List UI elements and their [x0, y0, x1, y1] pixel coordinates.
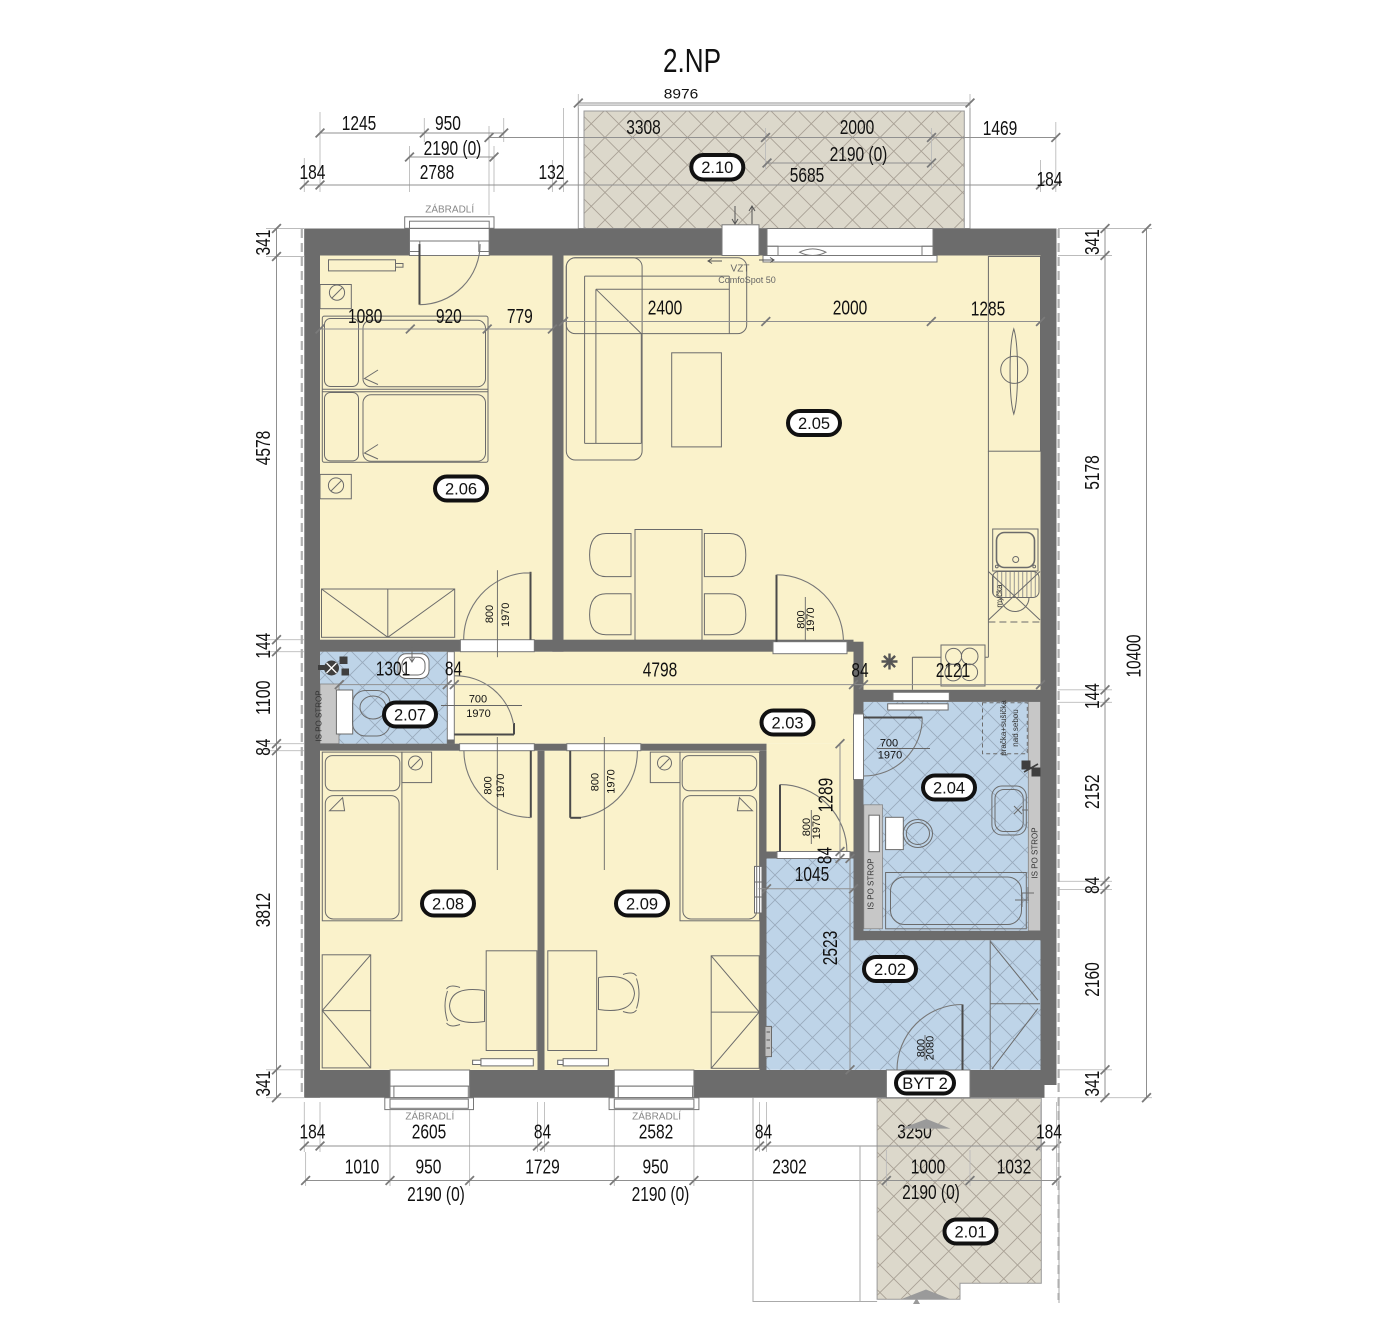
svg-text:1970: 1970: [878, 749, 902, 761]
svg-text:920: 920: [436, 306, 462, 328]
svg-text:1245: 1245: [342, 113, 377, 135]
svg-text:2190 (0): 2190 (0): [632, 1184, 690, 1206]
svg-text:10400: 10400: [1124, 634, 1146, 677]
svg-text:2.03: 2.03: [771, 714, 803, 732]
svg-text:800: 800: [484, 605, 496, 623]
svg-text:1970: 1970: [811, 815, 823, 839]
svg-text:4798: 4798: [643, 660, 678, 682]
svg-text:2.NP: 2.NP: [663, 42, 721, 79]
svg-text:2605: 2605: [412, 1122, 447, 1144]
svg-text:341: 341: [253, 230, 275, 256]
svg-text:1970: 1970: [500, 603, 512, 627]
svg-text:IS PO STROP: IS PO STROP: [314, 690, 323, 741]
svg-text:3308: 3308: [626, 117, 661, 139]
svg-text:1045: 1045: [795, 864, 830, 886]
svg-text:84: 84: [815, 847, 837, 864]
svg-text:1970: 1970: [495, 774, 507, 798]
svg-text:2788: 2788: [420, 162, 455, 184]
svg-text:nad sebou: nad sebou: [1011, 709, 1020, 746]
svg-text:2160: 2160: [1082, 962, 1104, 997]
svg-text:2080: 2080: [925, 1036, 937, 1060]
svg-text:132: 132: [539, 162, 565, 184]
svg-text:2.08: 2.08: [432, 895, 464, 913]
svg-text:BYT 2: BYT 2: [902, 1075, 948, 1093]
svg-text:1729: 1729: [525, 1157, 560, 1179]
svg-text:5178: 5178: [1082, 455, 1104, 490]
svg-text:2190 (0): 2190 (0): [830, 144, 888, 166]
svg-text:IS PO STROP: IS PO STROP: [866, 858, 875, 909]
svg-text:779: 779: [507, 306, 533, 328]
svg-text:2121: 2121: [936, 660, 971, 682]
svg-text:1000: 1000: [911, 1157, 946, 1179]
svg-text:2.04: 2.04: [933, 779, 965, 797]
svg-text:184: 184: [1037, 169, 1063, 191]
svg-text:2400: 2400: [648, 298, 683, 320]
svg-text:144: 144: [253, 633, 275, 659]
svg-text:1970: 1970: [606, 769, 618, 793]
svg-text:2582: 2582: [639, 1122, 674, 1144]
svg-text:1301: 1301: [376, 659, 411, 681]
svg-text:184: 184: [1036, 1122, 1062, 1144]
svg-text:950: 950: [435, 113, 461, 135]
svg-text:1032: 1032: [997, 1157, 1032, 1179]
svg-text:2.05: 2.05: [798, 415, 830, 433]
svg-text:2.02: 2.02: [874, 961, 906, 979]
svg-text:2.09: 2.09: [626, 895, 658, 913]
svg-text:4578: 4578: [253, 431, 275, 466]
svg-text:VZT: VZT: [731, 264, 750, 275]
svg-text:IS PO STROP: IS PO STROP: [1030, 827, 1039, 878]
svg-text:2.06: 2.06: [445, 480, 477, 498]
svg-text:1285: 1285: [971, 299, 1006, 321]
svg-text:84: 84: [1082, 877, 1104, 894]
svg-text:341: 341: [1082, 229, 1104, 255]
svg-text:3812: 3812: [253, 893, 275, 928]
svg-text:2523: 2523: [820, 931, 842, 966]
svg-text:800: 800: [590, 773, 602, 791]
svg-text:8976: 8976: [664, 85, 699, 101]
svg-text:2190 (0): 2190 (0): [424, 138, 482, 160]
svg-text:1970: 1970: [466, 708, 490, 720]
svg-text:2.07: 2.07: [394, 706, 426, 724]
svg-text:2302: 2302: [772, 1157, 807, 1179]
svg-text:341: 341: [253, 1071, 275, 1097]
svg-text:2.01: 2.01: [954, 1223, 986, 1241]
svg-text:700: 700: [880, 737, 898, 749]
svg-text:84: 84: [445, 659, 462, 681]
svg-text:950: 950: [643, 1157, 669, 1179]
svg-text:800: 800: [482, 776, 494, 794]
svg-text:2152: 2152: [1082, 775, 1104, 810]
svg-text:5685: 5685: [790, 165, 825, 187]
svg-text:2000: 2000: [833, 298, 868, 320]
svg-text:84: 84: [534, 1122, 551, 1144]
svg-text:184: 184: [300, 162, 326, 184]
svg-text:184: 184: [300, 1122, 326, 1144]
svg-text:144: 144: [1082, 683, 1104, 709]
svg-text:1469: 1469: [983, 118, 1018, 140]
svg-text:myčka: myčka: [995, 584, 1004, 608]
svg-text:pračka+sušička: pračka+sušička: [999, 700, 1008, 756]
svg-text:341: 341: [1082, 1071, 1104, 1097]
svg-text:1100: 1100: [253, 680, 275, 715]
svg-text:1010: 1010: [345, 1157, 380, 1179]
svg-text:ComfoSpot 50: ComfoSpot 50: [718, 275, 776, 285]
svg-text:84: 84: [755, 1122, 772, 1144]
svg-text:84: 84: [851, 660, 868, 682]
svg-text:ZÁBRADLÍ: ZÁBRADLÍ: [425, 203, 474, 216]
svg-text:1080: 1080: [348, 306, 383, 328]
svg-text:1289: 1289: [816, 778, 838, 813]
svg-text:950: 950: [416, 1157, 442, 1179]
svg-text:84: 84: [253, 739, 275, 756]
svg-text:2.10: 2.10: [701, 159, 733, 177]
svg-text:700: 700: [469, 694, 487, 706]
svg-text:2000: 2000: [840, 117, 875, 139]
svg-text:2190 (0): 2190 (0): [902, 1182, 960, 1204]
svg-text:2190 (0): 2190 (0): [407, 1184, 465, 1206]
svg-text:1970: 1970: [805, 607, 817, 631]
